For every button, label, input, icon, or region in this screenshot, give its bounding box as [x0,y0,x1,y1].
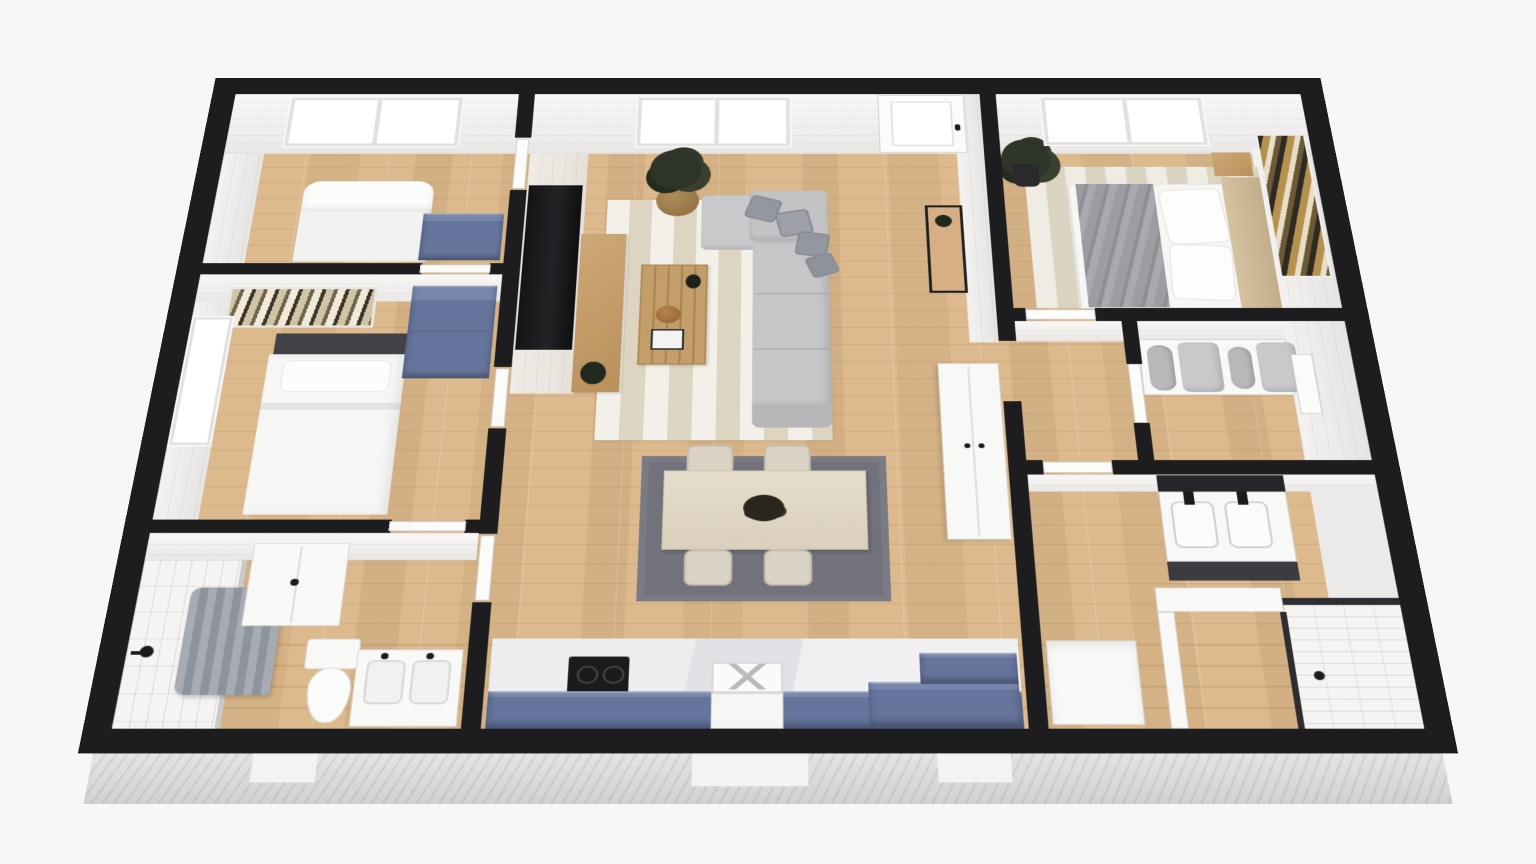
living-window [636,98,789,146]
bedroom1-window-mullion [372,100,383,143]
bathroom1-door [475,535,495,600]
master-window [1041,98,1208,145]
front-door-handle [955,124,961,130]
bedroom1-door [512,139,529,189]
closet-door [1128,364,1148,423]
front-door-glass [890,102,954,146]
bedroom2-west-window [169,317,233,445]
master-door [1025,309,1096,319]
exterior-step-right [937,753,1013,782]
bathroom2-door [1043,462,1113,473]
bedroom2-door [490,368,509,426]
wall-a-door [419,264,490,272]
screenshot-canvas [0,0,1536,864]
living-window-mullion [714,100,719,143]
master-window-mullion [1122,100,1132,142]
openings [78,78,1458,753]
exterior-step-center [692,753,809,786]
render-scene [0,0,1536,864]
wall-b-door [388,521,466,531]
bedroom1-window [284,98,463,146]
exterior-step-left [249,753,318,782]
floor-plan-3d [78,78,1458,753]
